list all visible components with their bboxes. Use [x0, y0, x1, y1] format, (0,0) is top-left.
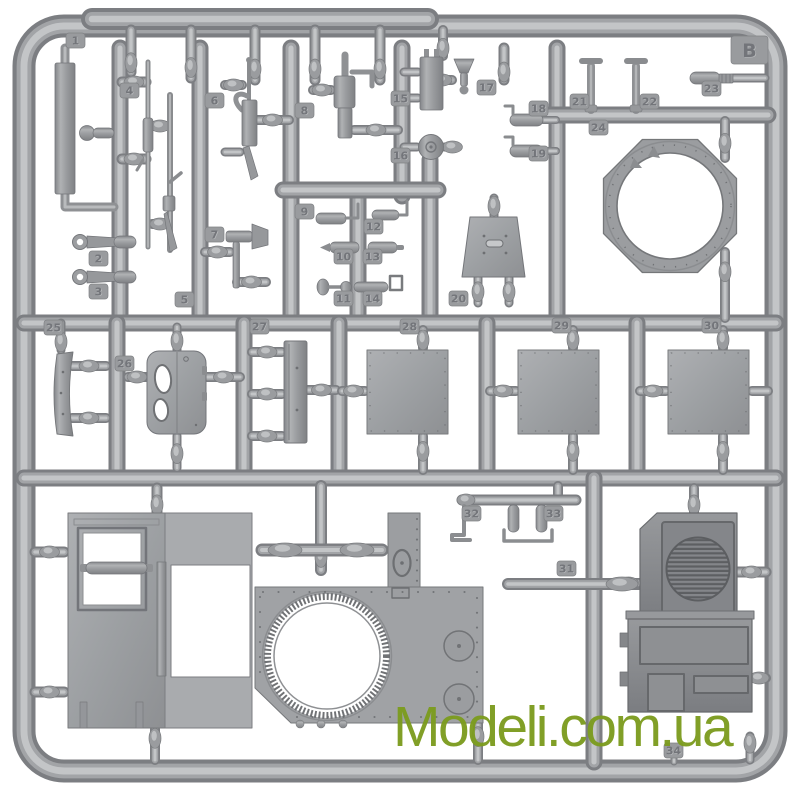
svg-text:30: 30: [704, 319, 720, 332]
part-label-7: 77: [205, 227, 224, 242]
part-label-28: 2828: [400, 319, 419, 334]
svg-text:32: 32: [464, 507, 479, 520]
part-17-funnel: [454, 59, 474, 95]
sprue-letter-tab: BB: [731, 36, 768, 64]
part-30-square-panel: [668, 350, 749, 434]
part-label-27: 2727: [250, 319, 269, 334]
part-label-4: 44: [120, 83, 139, 98]
svg-text:11: 11: [336, 292, 351, 305]
sprue-drawing: 1122334455667788991010111112121313141415…: [0, 0, 800, 785]
svg-text:29: 29: [554, 319, 569, 332]
svg-text:17: 17: [479, 81, 494, 94]
svg-text:13: 13: [365, 250, 380, 263]
part-label-26: 2626: [115, 356, 134, 371]
part-label-3: 33: [89, 284, 108, 299]
part-label-14: 1414: [363, 291, 382, 306]
part-label-22: 2222: [640, 94, 659, 109]
part-26-hatch-door: [147, 351, 207, 434]
part-1-flat-bar: [55, 48, 114, 207]
svg-text:10: 10: [336, 250, 352, 263]
part-label-10: 1010: [334, 249, 353, 264]
svg-text:20: 20: [451, 292, 467, 305]
part-label-1: 11: [66, 33, 85, 48]
part-label-16: 1616: [391, 148, 410, 163]
svg-text:23: 23: [704, 82, 719, 95]
svg-text:24: 24: [591, 121, 607, 134]
part-wall-with-oval-hatch: [388, 513, 420, 598]
part-label-20: 2020: [449, 291, 468, 306]
svg-text:7: 7: [211, 228, 219, 241]
part-label-13: 1313: [363, 249, 382, 264]
part-label-15: 1515: [391, 91, 410, 106]
svg-text:22: 22: [642, 95, 657, 108]
svg-text:15: 15: [393, 92, 408, 105]
part-label-25: 2525: [44, 320, 63, 335]
part-door-panel: [68, 513, 165, 728]
part-16-disc: [419, 135, 444, 160]
svg-text:3: 3: [95, 285, 103, 298]
part-label-5: 55: [175, 292, 194, 307]
part-label-12: 1212: [364, 219, 383, 234]
part-label-2: 22: [89, 251, 108, 266]
part-label-21: 2121: [570, 94, 589, 109]
part-15-bracket-plate: [420, 49, 443, 110]
part-label-30: 3030: [702, 318, 721, 333]
part-label-29: 2929: [552, 318, 571, 333]
svg-text:12: 12: [366, 220, 381, 233]
svg-text:8: 8: [301, 104, 309, 117]
watermark: Modeli.com.ua: [393, 699, 731, 756]
part-label-6: 66: [205, 93, 224, 108]
part-label-19: 1919: [529, 146, 548, 161]
svg-text:16: 16: [393, 149, 409, 162]
part-label-31: 3131: [557, 561, 576, 576]
svg-text:21: 21: [572, 95, 587, 108]
part-2-tow-shackle: [73, 235, 137, 250]
svg-text:14: 14: [365, 292, 381, 305]
svg-text:4: 4: [126, 84, 134, 97]
part-label-32: 3232: [462, 506, 481, 521]
part-label-9: 99: [295, 204, 314, 219]
sprue-photo: 1122334455667788991010111112121313141415…: [0, 0, 800, 785]
svg-text:18: 18: [531, 102, 546, 115]
part-label-18: 1818: [529, 101, 548, 116]
part-label-24: 2424: [589, 120, 608, 135]
part-radiator-box: [640, 513, 737, 618]
part-label-33: 3333: [544, 506, 563, 521]
svg-text:28: 28: [402, 320, 417, 333]
svg-text:31: 31: [559, 562, 574, 575]
svg-text:19: 19: [531, 147, 546, 160]
svg-text:2: 2: [95, 252, 103, 265]
part-label-17: 1717: [477, 80, 496, 95]
part-25-curved-step: [54, 352, 73, 436]
svg-text:26: 26: [117, 357, 133, 370]
svg-text:5: 5: [181, 293, 189, 306]
part-label-8: 88: [295, 103, 314, 118]
svg-text:6: 6: [211, 94, 219, 107]
svg-text:27: 27: [252, 320, 267, 333]
svg-text:1: 1: [72, 34, 80, 47]
part-27-flat-strip: [284, 341, 307, 443]
svg-text:B: B: [742, 40, 756, 62]
part-24-turret-ring: [604, 140, 737, 273]
part-mid-panel: [157, 513, 252, 728]
part-label-11: 1111: [334, 291, 353, 306]
part-3-tow-shackle: [73, 270, 137, 285]
svg-text:33: 33: [546, 507, 561, 520]
part-20-trapezoid-plate: [462, 217, 525, 277]
part-29-square-panel: [518, 350, 599, 434]
svg-text:25: 25: [46, 321, 61, 334]
part-label-23: 2323: [702, 81, 721, 96]
part-28-square-panel: [367, 350, 448, 434]
svg-text:9: 9: [301, 205, 309, 218]
